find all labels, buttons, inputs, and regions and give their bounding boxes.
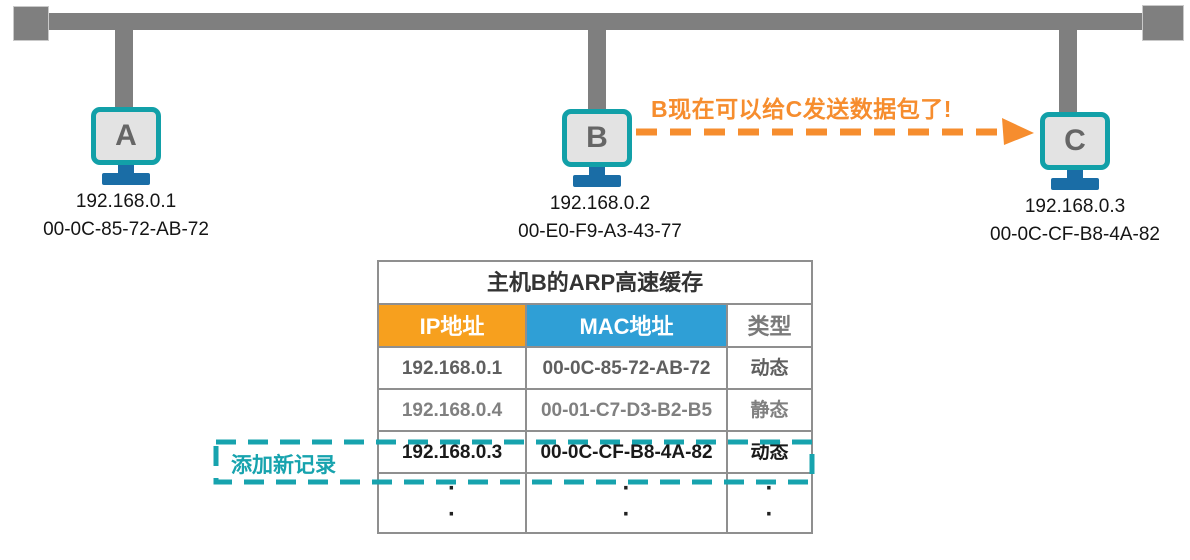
new-record-label: 添加新记录 bbox=[231, 449, 336, 479]
host-a-monitor-base bbox=[102, 173, 150, 185]
column-header-type: 类型 bbox=[728, 305, 811, 348]
ellipsis-dots: · · bbox=[728, 474, 811, 532]
arp-header-row: IP地址 MAC地址 类型 bbox=[379, 305, 811, 348]
host-b-ip: 192.168.0.2 bbox=[470, 190, 730, 218]
cell-type: 动态 bbox=[728, 348, 811, 390]
cell-mac: 00-0C-85-72-AB-72 bbox=[527, 348, 728, 390]
host-b-labels: 192.168.0.2 00-E0-F9-A3-43-77 bbox=[470, 190, 730, 246]
arp-cache-table: 主机B的ARP高速缓存 IP地址 MAC地址 类型 192.168.0.1 00… bbox=[377, 260, 813, 534]
host-a-bus-link bbox=[115, 29, 133, 109]
column-header-ip: IP地址 bbox=[379, 305, 527, 348]
column-header-mac: MAC地址 bbox=[527, 305, 728, 348]
table-row-ellipsis: · · · · · · bbox=[379, 474, 811, 532]
host-c-labels: 192.168.0.3 00-0C-CF-B8-4A-82 bbox=[945, 193, 1190, 249]
host-a-labels: 192.168.0.1 00-0C-85-72-AB-72 bbox=[0, 188, 256, 244]
host-b-letter: B bbox=[586, 123, 608, 153]
network-diagram: A 192.168.0.1 00-0C-85-72-AB-72 B 192.16… bbox=[0, 0, 1190, 560]
host-c-ip: 192.168.0.3 bbox=[945, 193, 1190, 221]
host-c-monitor-icon: C bbox=[1040, 112, 1110, 170]
table-row: 192.168.0.1 00-0C-85-72-AB-72 动态 bbox=[379, 348, 811, 390]
table-row-new-record: 192.168.0.3 00-0C-CF-B8-4A-82 动态 bbox=[379, 432, 811, 474]
host-b-mac: 00-E0-F9-A3-43-77 bbox=[470, 218, 730, 246]
network-bus bbox=[28, 13, 1154, 30]
cell-ip: 192.168.0.4 bbox=[379, 390, 527, 432]
host-a-ip: 192.168.0.1 bbox=[0, 188, 256, 216]
table-row: 192.168.0.4 00-01-C7-D3-B2-B5 静态 bbox=[379, 390, 811, 432]
host-b-monitor-base bbox=[573, 175, 621, 187]
arp-table-title: 主机B的ARP高速缓存 bbox=[379, 262, 811, 305]
host-c-letter: C bbox=[1064, 126, 1086, 156]
host-c-mac: 00-0C-CF-B8-4A-82 bbox=[945, 221, 1190, 249]
cell-mac: 00-0C-CF-B8-4A-82 bbox=[527, 432, 728, 474]
cell-type: 静态 bbox=[728, 390, 811, 432]
cell-mac: 00-01-C7-D3-B2-B5 bbox=[527, 390, 728, 432]
host-b-monitor-icon: B bbox=[562, 109, 632, 167]
cell-ip: 192.168.0.3 bbox=[379, 432, 527, 474]
cell-type: 动态 bbox=[728, 432, 811, 474]
host-c-monitor-base bbox=[1051, 178, 1099, 190]
host-a-monitor-icon: A bbox=[91, 107, 161, 165]
cell-ip: 192.168.0.1 bbox=[379, 348, 527, 390]
host-a-letter: A bbox=[115, 121, 137, 151]
host-a-mac: 00-0C-85-72-AB-72 bbox=[0, 216, 256, 244]
dashed-arrow-icon bbox=[628, 105, 1044, 151]
bus-terminator-left-icon bbox=[13, 6, 49, 41]
ellipsis-dots: · · bbox=[527, 474, 728, 532]
bus-terminator-right-icon bbox=[1142, 5, 1184, 41]
host-b-bus-link bbox=[588, 29, 606, 109]
ellipsis-dots: · · bbox=[379, 474, 527, 532]
host-c-bus-link bbox=[1059, 29, 1077, 113]
